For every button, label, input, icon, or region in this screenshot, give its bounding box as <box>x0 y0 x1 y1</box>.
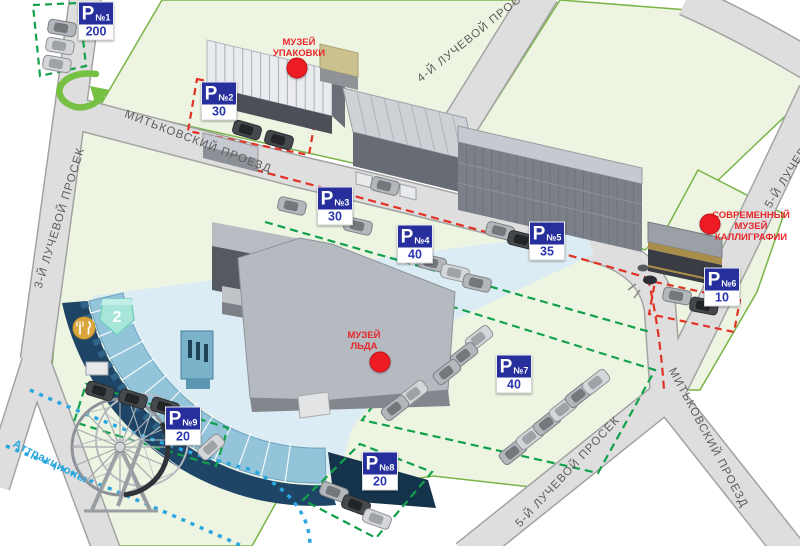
wheel-hub <box>115 442 125 452</box>
parking-sign-p6[interactable]: P№610 <box>704 268 740 307</box>
parking-sign-plate: P№9 <box>165 407 201 430</box>
parking-capacity: 40 <box>496 378 532 394</box>
building-ice-museum-entrance <box>298 392 330 418</box>
parking-letter: P <box>533 224 546 243</box>
parking-sign-p5[interactable]: P№535 <box>529 222 565 261</box>
parking-letter: P <box>205 84 218 103</box>
parking-letter: P <box>82 4 95 23</box>
parking-sign-plate: P№1 <box>78 2 114 25</box>
museum-marker-dot[interactable] <box>287 58 308 79</box>
parking-sign-plate: P№5 <box>529 222 565 245</box>
parking-sign-plate: P№7 <box>496 355 532 378</box>
zone-badge-number: 2 <box>113 309 122 326</box>
sokolniki-park-scheme-map: 2 МИТЬКОВСКИЙ ПРОЕЗД3-Й ЛУЧЕВОЙ ПРОСЕК4-… <box>0 0 800 546</box>
parking-sign-p9[interactable]: P№920 <box>165 407 201 446</box>
parking-sign-plate: P№6 <box>704 268 740 291</box>
kiosk <box>86 362 108 375</box>
zone-badge-highlight <box>101 299 133 305</box>
restaurant-icon[interactable] <box>73 317 95 339</box>
parking-number: №3 <box>334 197 349 207</box>
parking-number: №5 <box>546 232 561 242</box>
road <box>666 394 794 546</box>
parking-sign-p7[interactable]: P№740 <box>496 355 532 394</box>
car <box>361 508 392 531</box>
tower-base <box>186 379 210 389</box>
parking-sign-plate: P№4 <box>397 225 433 248</box>
parking-sign-p1[interactable]: P№1200 <box>78 2 114 41</box>
building-calligraphy-cylinder <box>643 276 657 285</box>
tower-window <box>188 340 192 358</box>
parking-number: №2 <box>218 92 233 102</box>
parking-sign-p3[interactable]: P№330 <box>317 187 353 226</box>
parking-capacity: 40 <box>397 248 433 264</box>
parking-letter: P <box>366 454 379 473</box>
parking-sign-p4[interactable]: P№440 <box>397 225 433 264</box>
parking-number: №9 <box>182 417 197 427</box>
parking-capacity: 10 <box>704 291 740 307</box>
parking-letter: P <box>500 357 513 376</box>
parking-capacity: 30 <box>201 105 237 121</box>
parking-sign-plate: P№8 <box>362 452 398 475</box>
parking-number: №1 <box>95 12 110 22</box>
parking-number: №8 <box>379 462 394 472</box>
museum-marker-dot[interactable] <box>700 214 721 235</box>
parking-number: №6 <box>721 278 736 288</box>
parking-letter: P <box>708 270 721 289</box>
map-canvas: 2 <box>0 0 800 546</box>
parking-number: №7 <box>513 365 528 375</box>
parking-number: №4 <box>414 235 429 245</box>
parking-letter: P <box>169 409 182 428</box>
parking-capacity: 200 <box>78 25 114 41</box>
parking-sign-plate: P№2 <box>201 82 237 105</box>
parking-letter: P <box>401 227 414 246</box>
parking-capacity: 20 <box>362 475 398 491</box>
parking-letter: P <box>321 189 334 208</box>
parking-sign-p2[interactable]: P№230 <box>201 82 237 121</box>
parking-sign-p8[interactable]: P№820 <box>362 452 398 491</box>
tower-window <box>204 344 208 362</box>
tower-window <box>196 342 200 360</box>
parking-capacity: 35 <box>529 245 565 261</box>
parking-capacity: 20 <box>165 430 201 446</box>
museum-marker-dot[interactable] <box>370 352 391 373</box>
parking-sign-plate: P№3 <box>317 187 353 210</box>
building-calligraphy-cylinder <box>638 265 649 272</box>
parking-capacity: 30 <box>317 210 353 226</box>
